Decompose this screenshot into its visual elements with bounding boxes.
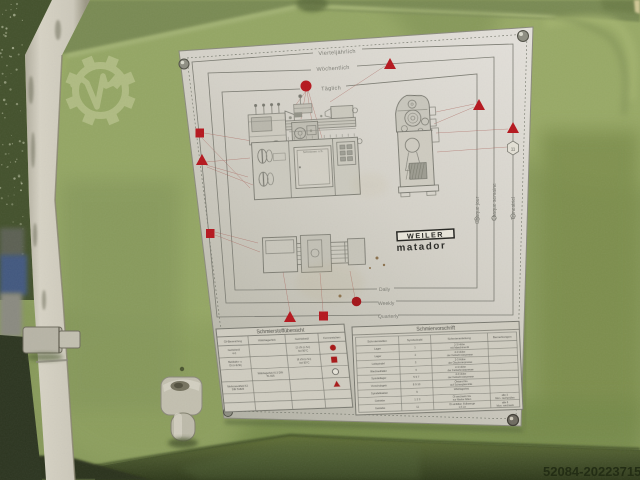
svg-text:52084-20223715: 52084-20223715: [543, 464, 640, 479]
